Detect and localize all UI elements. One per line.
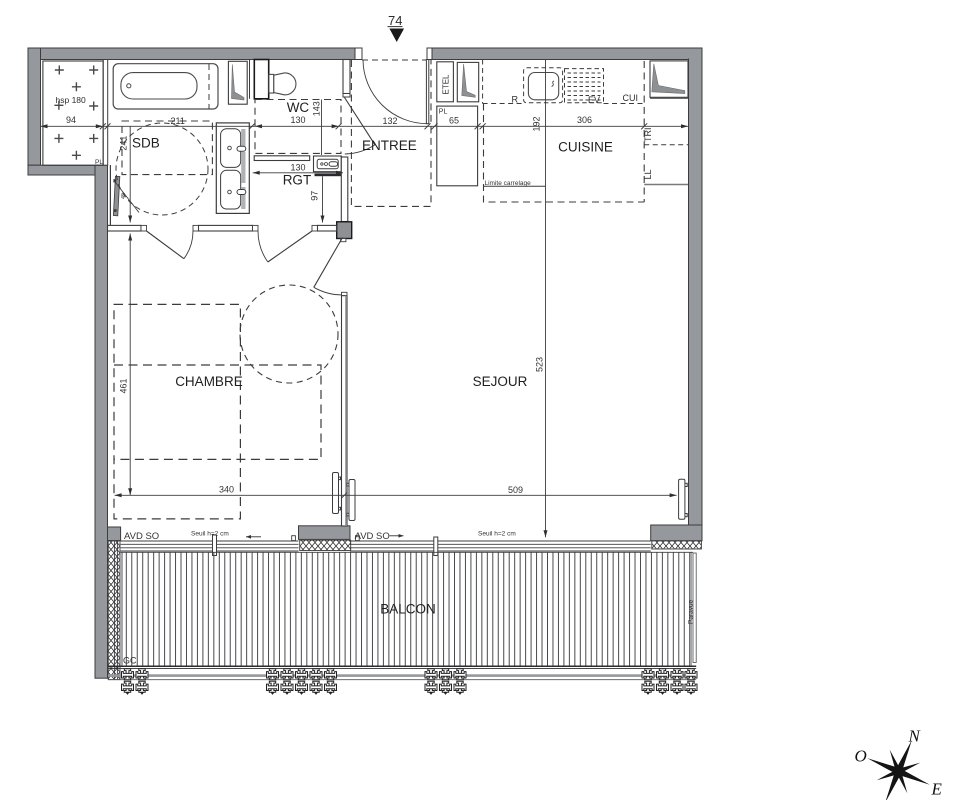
svg-text:130: 130 xyxy=(291,115,306,125)
svg-text:ENTREE: ENTREE xyxy=(362,138,417,153)
svg-text:192: 192 xyxy=(532,116,542,131)
svg-text:PL: PL xyxy=(439,109,448,116)
svg-text:E: E xyxy=(931,780,943,799)
svg-text:241: 241 xyxy=(119,136,129,151)
svg-text:hsp 180: hsp 180 xyxy=(56,95,87,105)
svg-text:97: 97 xyxy=(310,191,320,201)
svg-text:R: R xyxy=(512,95,519,105)
svg-text:EV: EV xyxy=(588,95,600,105)
svg-text:509: 509 xyxy=(508,485,523,495)
svg-text:PL: PL xyxy=(95,159,103,166)
svg-text:94: 94 xyxy=(66,115,76,125)
svg-text:LL: LL xyxy=(643,169,653,179)
svg-text:SEJOUR: SEJOUR xyxy=(473,374,528,389)
svg-text:TRI: TRI xyxy=(643,128,653,143)
svg-text:143: 143 xyxy=(312,101,322,116)
svg-text:461: 461 xyxy=(119,378,129,393)
svg-text:ETEL: ETEL xyxy=(442,74,451,95)
svg-text:CUISINE: CUISINE xyxy=(558,139,613,154)
svg-text:GC: GC xyxy=(123,656,137,666)
svg-text:523: 523 xyxy=(535,357,545,372)
svg-text:65: 65 xyxy=(449,116,459,126)
svg-text:RGT: RGT xyxy=(283,172,312,187)
svg-text:132: 132 xyxy=(383,116,398,126)
svg-text:Seuil h=2 cm: Seuil h=2 cm xyxy=(191,531,229,538)
svg-text:45: 45 xyxy=(121,193,127,199)
svg-text:130: 130 xyxy=(291,163,306,173)
svg-text:306: 306 xyxy=(577,115,592,125)
svg-text:AVD SO: AVD SO xyxy=(355,531,390,542)
svg-text:211: 211 xyxy=(171,116,185,126)
svg-text:Limite carrelage: Limite carrelage xyxy=(485,180,532,187)
svg-text:CHAMBRE: CHAMBRE xyxy=(175,374,243,389)
svg-text:74: 74 xyxy=(388,13,402,28)
svg-text:BALCON: BALCON xyxy=(380,601,436,616)
svg-text:CUI: CUI xyxy=(623,93,639,103)
svg-text:WC: WC xyxy=(287,100,310,115)
svg-text:Paravue: Paravue xyxy=(687,599,694,624)
svg-text:O: O xyxy=(855,747,867,766)
svg-text:N: N xyxy=(908,727,922,746)
svg-text:340: 340 xyxy=(219,485,234,495)
svg-text:Seuil h=2 cm: Seuil h=2 cm xyxy=(478,531,516,538)
svg-text:SDB: SDB xyxy=(132,135,160,150)
svg-text:AVD SO: AVD SO xyxy=(124,531,159,542)
